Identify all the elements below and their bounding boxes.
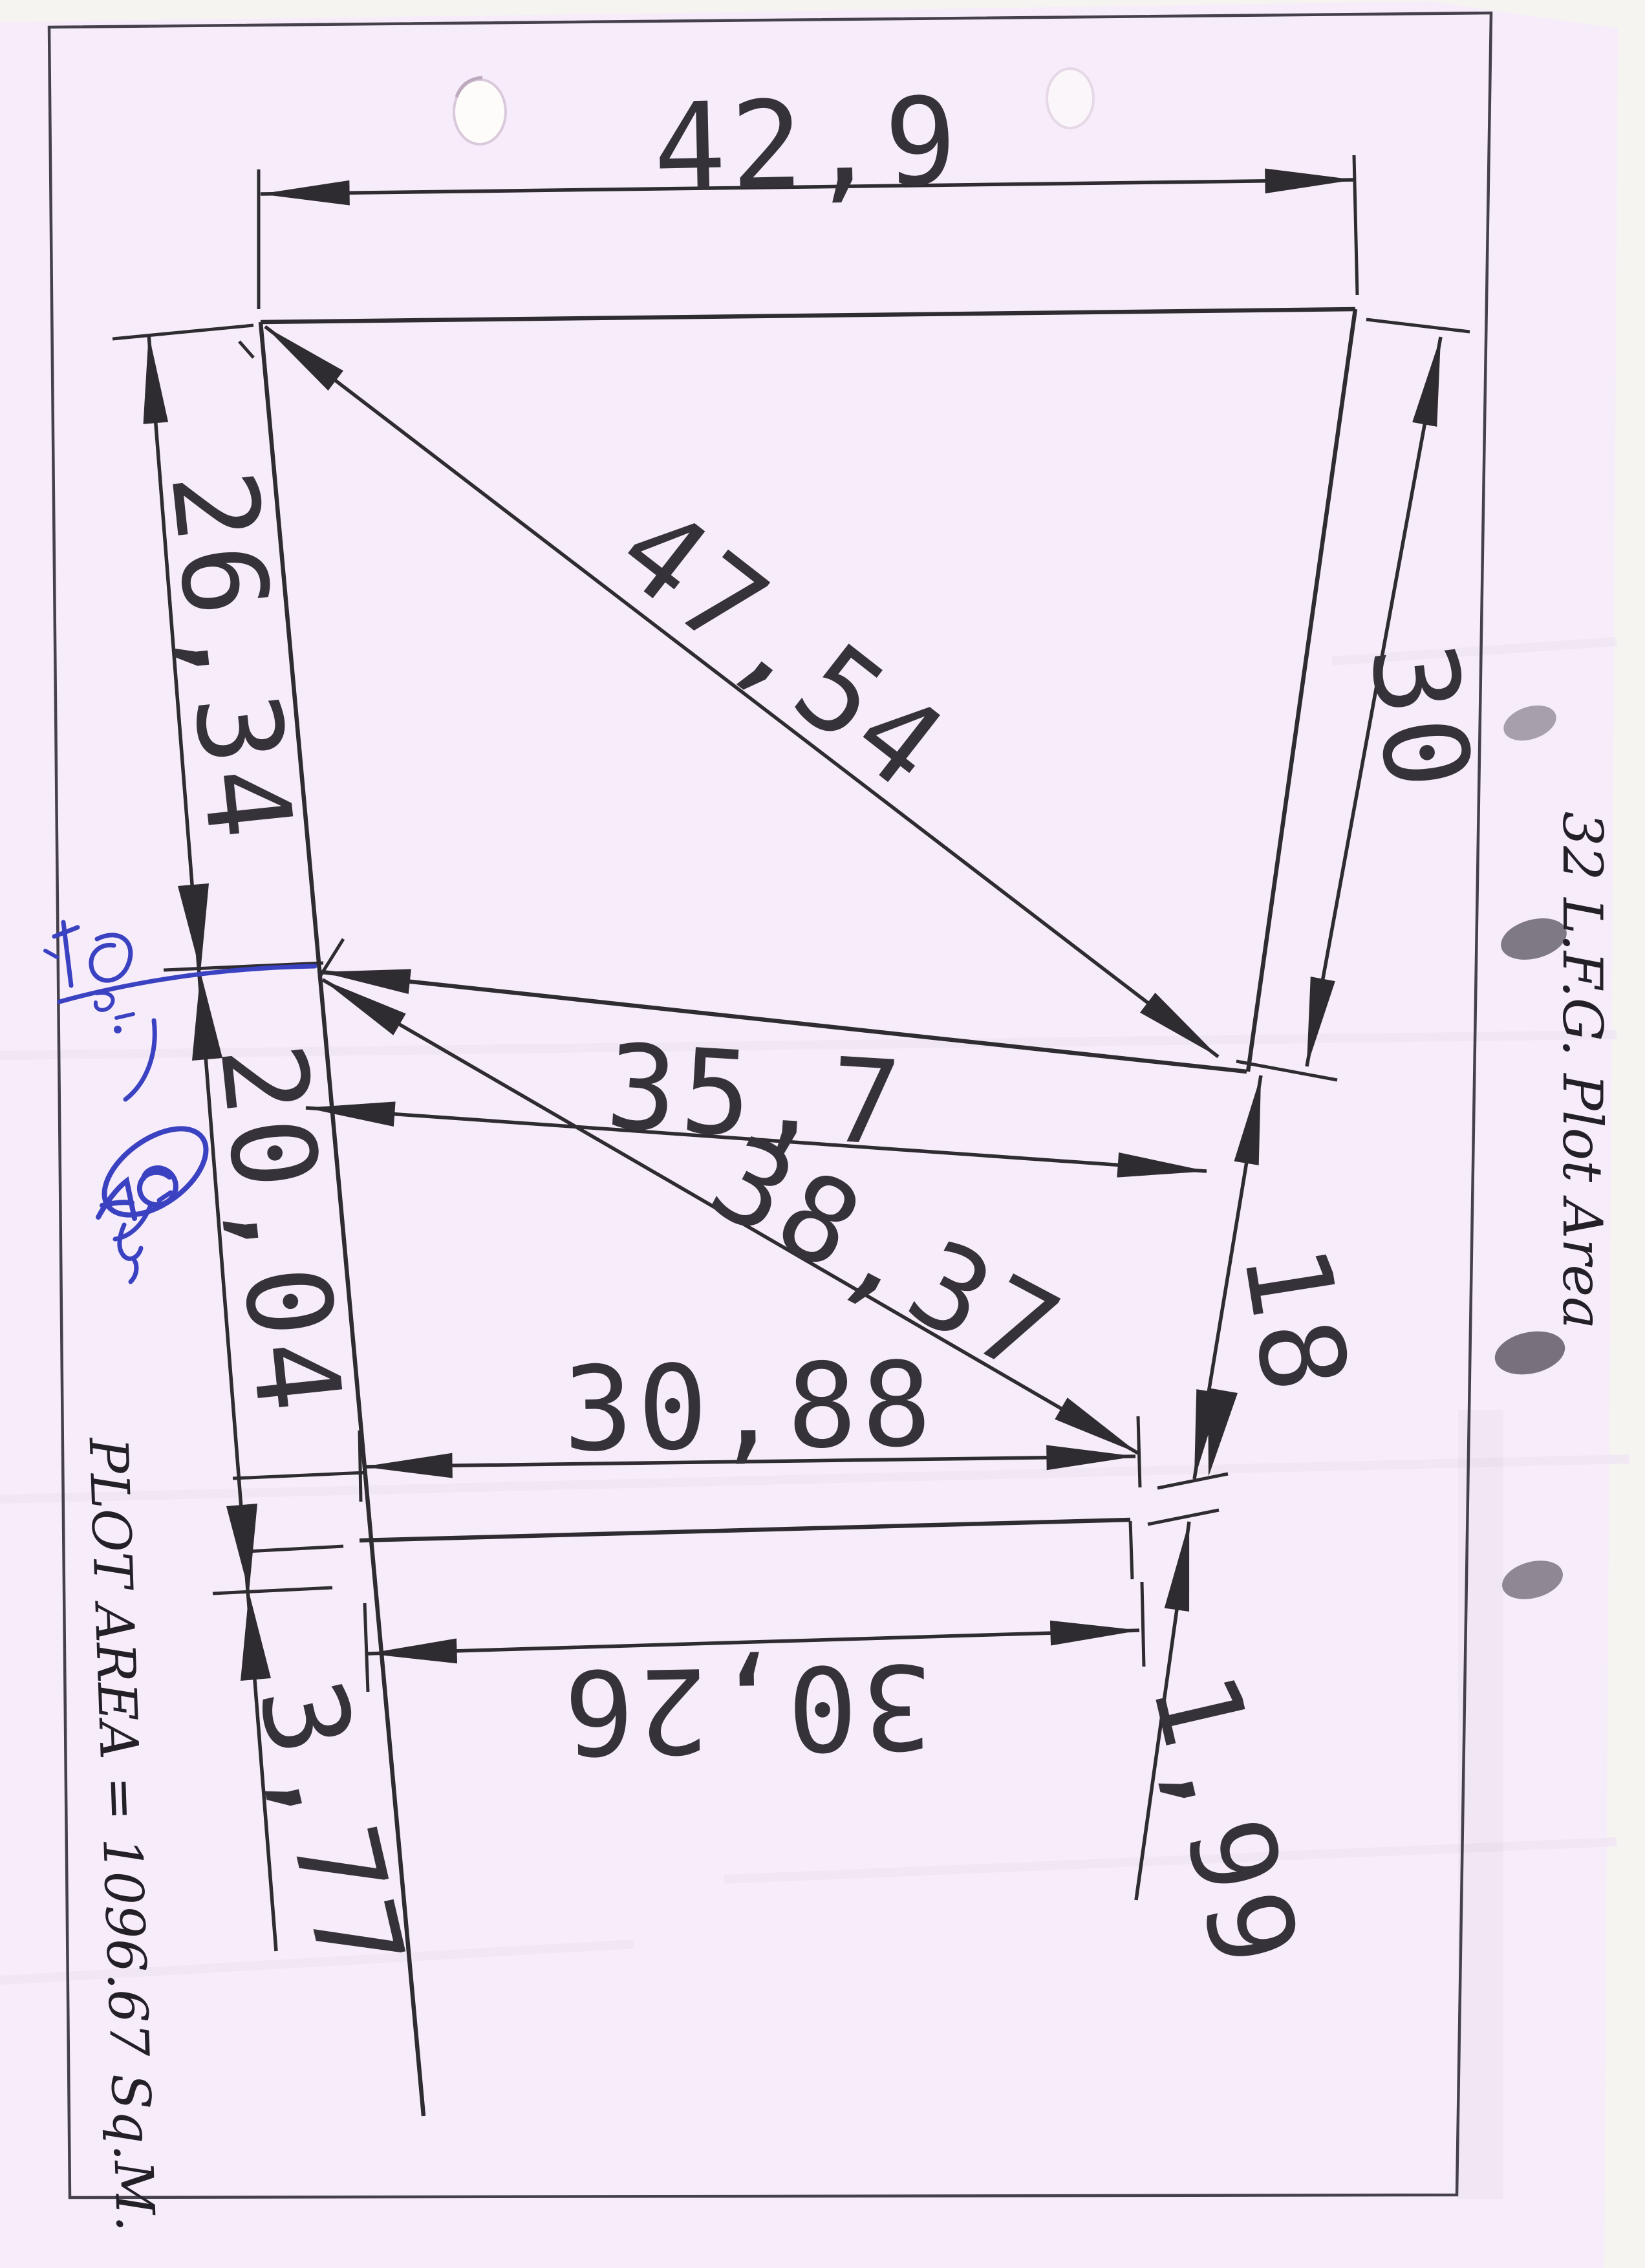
handwritten-note-right-margin: 32 L.F.G. Plot Area xyxy=(1551,812,1614,1330)
extension-line xyxy=(1142,1582,1144,1667)
punch-hole-top-left xyxy=(454,78,506,144)
dim-label-top-width: 42,9 xyxy=(652,71,962,218)
extension-line xyxy=(1130,1521,1132,1579)
dim-label-right-middle: 18 xyxy=(1216,1237,1373,1405)
fold-shading xyxy=(1458,1410,1503,2199)
extension-line xyxy=(360,1431,361,1502)
extension-line xyxy=(1138,1416,1140,1487)
dim-label-bottom-width-upper: 30,88 xyxy=(562,1337,937,1478)
plot-survey-diagram: 42,9 26,34 47,54 30 35,7 38,37 20,04 18 … xyxy=(0,0,1645,2268)
dim-label-right-upper: 30 xyxy=(1344,636,1496,801)
dim-label-bottom-width-lower: 30,26 xyxy=(558,1637,933,1779)
scanned-survey-sheet: 42,9 26,34 47,54 30 35,7 38,37 20,04 18 … xyxy=(0,0,1645,2268)
punch-hole-top-right xyxy=(1047,69,1093,128)
